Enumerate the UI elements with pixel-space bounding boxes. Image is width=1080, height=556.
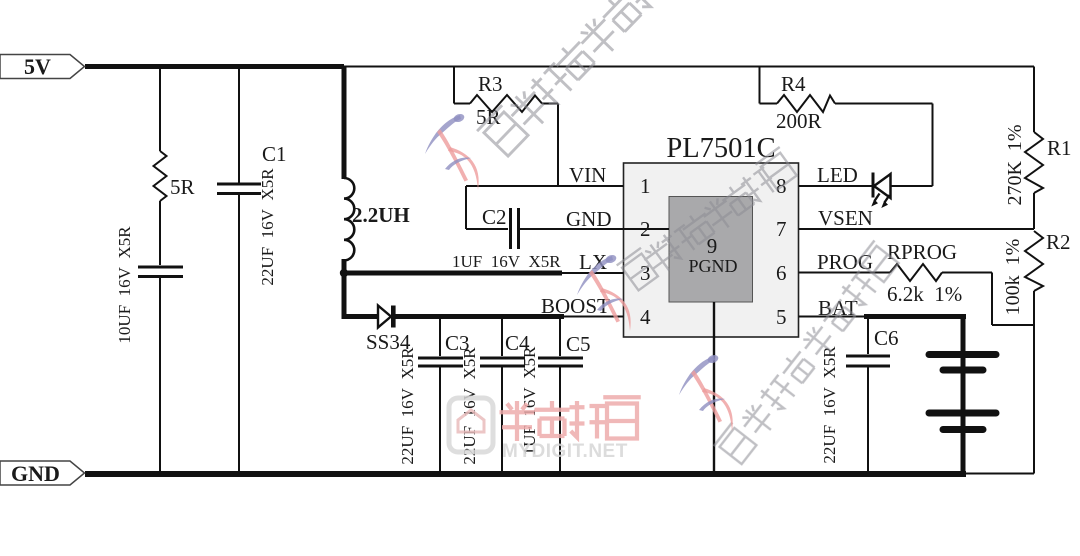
svg-text:1: 1 [640, 174, 651, 198]
svg-text:270K 1%: 270K 1% [1004, 124, 1026, 205]
svg-text:6: 6 [776, 261, 787, 285]
svg-text:C6: C6 [874, 326, 899, 350]
svg-text:5: 5 [776, 305, 787, 329]
svg-text:22UF 16V X5R: 22UF 16V X5R [820, 346, 839, 464]
svg-text:6.2k 1%: 6.2k 1% [887, 282, 962, 306]
svg-text:7: 7 [776, 217, 787, 241]
svg-text:C1: C1 [262, 142, 287, 166]
svg-text:C5: C5 [566, 332, 591, 356]
svg-text:BOOST: BOOST [541, 294, 610, 318]
svg-text:1UF 16V X5R: 1UF 16V X5R [520, 346, 539, 455]
svg-text:PGND: PGND [688, 256, 737, 276]
svg-text:4: 4 [640, 305, 651, 329]
svg-text:100k 1%: 100k 1% [1002, 239, 1024, 316]
svg-text:MYDIGIT.NET: MYDIGIT.NET [502, 441, 628, 462]
svg-text:GND: GND [11, 461, 60, 486]
svg-text:R3: R3 [478, 72, 503, 96]
svg-text:C2: C2 [482, 205, 507, 229]
svg-text:5V: 5V [24, 54, 51, 79]
svg-text:R4: R4 [781, 72, 806, 96]
svg-text:2: 2 [640, 217, 651, 241]
svg-text:22UF 16V X5R: 22UF 16V X5R [258, 168, 277, 286]
svg-text:200R: 200R [776, 109, 822, 133]
svg-text:10UF 16V X5R: 10UF 16V X5R [115, 226, 134, 344]
svg-text:VSEN: VSEN [818, 206, 873, 230]
svg-text:RPROG: RPROG [887, 240, 957, 264]
svg-text:1UF 16V X5R: 1UF 16V X5R [452, 252, 561, 271]
svg-text:VIN: VIN [569, 163, 606, 187]
svg-text:5R: 5R [170, 175, 195, 199]
svg-text:22UF 16V X5R: 22UF 16V X5R [398, 347, 417, 465]
svg-text:22UF 16V X5R: 22UF 16V X5R [460, 347, 479, 465]
svg-text:2.2UH: 2.2UH [352, 203, 410, 227]
svg-text:R2: R2 [1046, 230, 1071, 254]
svg-text:GND: GND [566, 207, 612, 231]
svg-text:PL7501C: PL7501C [666, 133, 775, 164]
svg-text:LED: LED [817, 163, 858, 187]
svg-text:R1: R1 [1047, 136, 1072, 160]
